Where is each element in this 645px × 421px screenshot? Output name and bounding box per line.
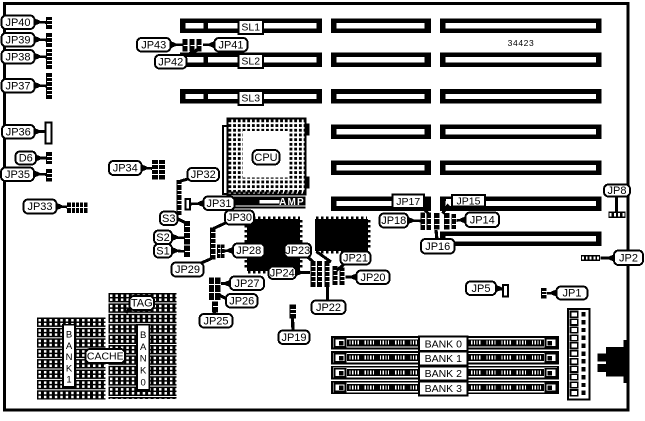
svg-text:BANK 2: BANK 2 xyxy=(425,368,463,380)
svg-text:SL2: SL2 xyxy=(241,56,260,68)
svg-text:N: N xyxy=(140,354,147,365)
svg-text:JP40: JP40 xyxy=(5,17,30,29)
svg-text:JP5: JP5 xyxy=(472,283,491,295)
svg-text:TAG: TAG xyxy=(131,298,153,310)
svg-text:34423: 34423 xyxy=(508,38,535,48)
svg-text:JP25: JP25 xyxy=(203,315,228,327)
svg-text:JP18: JP18 xyxy=(381,215,406,227)
svg-text:JP24: JP24 xyxy=(270,267,295,279)
svg-text:JP15: JP15 xyxy=(457,195,481,207)
svg-text:BANK 3: BANK 3 xyxy=(425,383,463,395)
svg-text:JP35: JP35 xyxy=(5,169,30,181)
svg-text:BANK 1: BANK 1 xyxy=(425,353,463,365)
svg-text:BANK 0: BANK 0 xyxy=(425,338,463,350)
svg-text:JP32: JP32 xyxy=(191,169,216,181)
svg-text:SL3: SL3 xyxy=(241,92,260,104)
svg-text:K: K xyxy=(140,366,147,377)
svg-text:S3: S3 xyxy=(162,213,175,225)
svg-text:D6: D6 xyxy=(19,153,33,165)
svg-text:JP22: JP22 xyxy=(316,302,341,314)
svg-text:JP38: JP38 xyxy=(5,51,30,63)
svg-text:A: A xyxy=(66,341,73,352)
svg-text:JP28: JP28 xyxy=(236,245,261,257)
svg-text:JP17: JP17 xyxy=(396,196,420,208)
svg-text:0: 0 xyxy=(141,377,146,388)
svg-text:JP34: JP34 xyxy=(113,163,138,175)
svg-text:JP26: JP26 xyxy=(229,295,254,307)
svg-text:JP14: JP14 xyxy=(470,214,495,226)
svg-text:JP8: JP8 xyxy=(608,185,627,197)
svg-text:JP20: JP20 xyxy=(360,272,385,284)
svg-text:JP30: JP30 xyxy=(227,212,252,224)
svg-text:JP39: JP39 xyxy=(5,34,30,46)
svg-text:JP23: JP23 xyxy=(285,245,310,257)
svg-text:S1: S1 xyxy=(156,245,169,257)
svg-text:N: N xyxy=(66,352,73,363)
svg-text:JP27: JP27 xyxy=(234,278,259,290)
svg-text:JP1: JP1 xyxy=(563,288,582,300)
svg-text:B: B xyxy=(140,330,146,341)
svg-text:CACHE: CACHE xyxy=(87,351,124,363)
svg-text:JP2: JP2 xyxy=(619,252,638,264)
svg-text:1: 1 xyxy=(66,375,71,386)
svg-text:JP37: JP37 xyxy=(5,80,30,92)
svg-text:AMP: AMP xyxy=(279,197,305,208)
svg-text:JP41: JP41 xyxy=(218,39,243,51)
svg-text:JP16: JP16 xyxy=(425,241,450,253)
svg-text:JP19: JP19 xyxy=(281,332,306,344)
svg-text:JP29: JP29 xyxy=(175,264,200,276)
svg-text:JP43: JP43 xyxy=(141,39,166,51)
svg-text:B: B xyxy=(66,330,72,341)
svg-text:JP33: JP33 xyxy=(27,201,52,213)
svg-text:CPU: CPU xyxy=(254,152,277,164)
svg-text:SL1: SL1 xyxy=(241,22,260,34)
svg-text:JP21: JP21 xyxy=(343,253,368,265)
svg-text:JP42: JP42 xyxy=(158,56,183,68)
svg-text:JP31: JP31 xyxy=(206,198,231,210)
svg-text:K: K xyxy=(66,363,73,374)
svg-text:S2: S2 xyxy=(156,232,169,244)
svg-text:A: A xyxy=(140,342,147,353)
svg-text:JP36: JP36 xyxy=(6,126,31,138)
